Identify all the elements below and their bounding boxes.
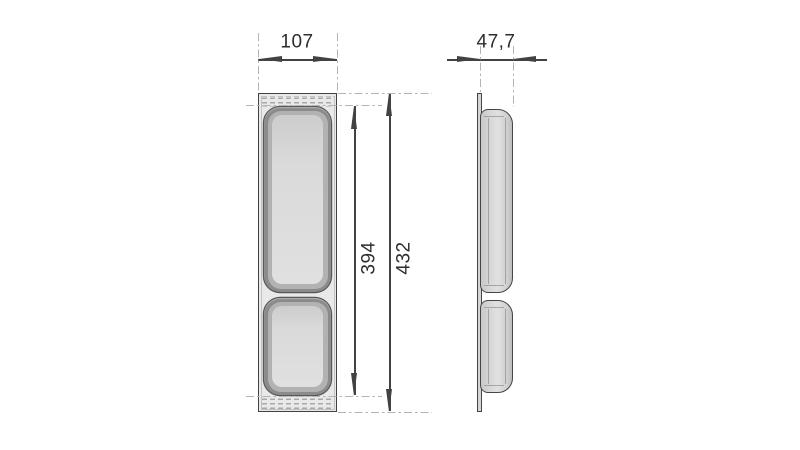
front-view-bottom-texture-strip — [262, 397, 333, 409]
drawing-canvas: 107 47,7 394 432 — [0, 0, 800, 450]
upper-compartment-floor — [272, 115, 323, 284]
lower-compartment-floor — [272, 306, 323, 387]
arrowhead-up-icon — [386, 93, 392, 116]
front-view-lower-compartment — [264, 298, 331, 395]
extension-line — [513, 46, 514, 107]
arrowhead-right-icon — [313, 56, 336, 62]
dim-label-front-width: 107 — [280, 33, 313, 52]
arrowhead-left-icon — [513, 56, 536, 62]
arrowhead-left-icon — [259, 56, 282, 62]
tangent-line — [505, 118, 506, 284]
dim-label-side-depth: 47,7 — [477, 33, 516, 52]
side-view-lower-bulge — [480, 300, 513, 393]
side-view-upper-bulge — [480, 109, 513, 293]
trim-line — [246, 396, 382, 397]
extension-line — [337, 33, 338, 91]
dim-label-inner-height: 394 — [360, 241, 379, 274]
trim-line — [246, 105, 382, 106]
tangent-line — [484, 385, 504, 386]
tangent-line — [484, 307, 504, 308]
tangent-line — [488, 309, 489, 384]
dimension-line — [354, 106, 355, 395]
tangent-line — [488, 118, 489, 284]
extension-line — [480, 46, 481, 92]
arrowhead-down-icon — [351, 373, 357, 396]
arrowhead-right-icon — [457, 56, 480, 62]
dimension-line — [389, 94, 390, 411]
tangent-line — [484, 116, 504, 117]
arrowhead-up-icon — [351, 106, 357, 129]
tangent-line — [484, 285, 504, 286]
front-view-upper-compartment — [264, 107, 331, 292]
tangent-line — [505, 309, 506, 384]
dim-label-outer-height: 432 — [395, 241, 414, 274]
extension-line — [338, 93, 432, 94]
arrowhead-down-icon — [386, 389, 392, 412]
extension-line — [338, 412, 432, 413]
